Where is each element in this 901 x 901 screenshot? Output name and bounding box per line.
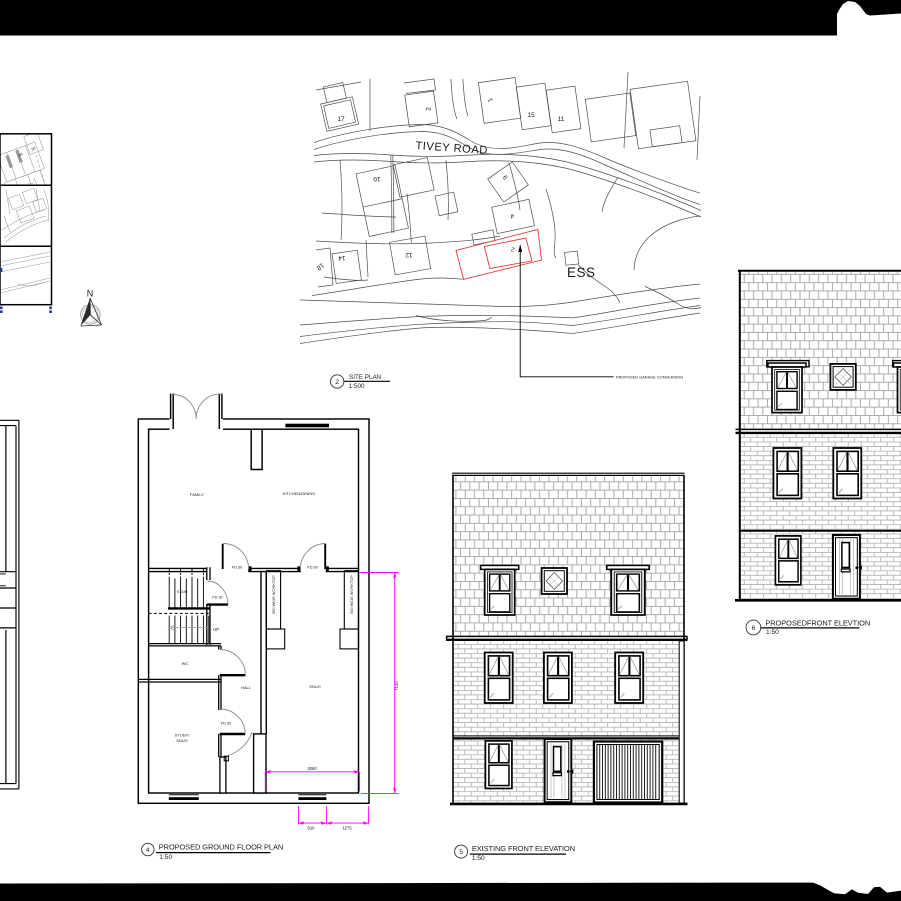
svg-text:FD.30: FD.30: [221, 722, 231, 726]
svg-text:6: 6: [752, 625, 756, 632]
svg-text:1:50: 1:50: [766, 629, 779, 636]
svg-text:PROPOSED GARAGE CONVERSION: PROPOSED GARAGE CONVERSION: [616, 375, 683, 380]
svg-text:3060: 3060: [307, 766, 317, 771]
svg-text:SNUG: SNUG: [176, 738, 188, 743]
svg-text:TIVEY ROAD: TIVEY ROAD: [415, 140, 488, 157]
svg-text:1:50: 1:50: [159, 854, 172, 861]
svg-text:17: 17: [337, 116, 345, 123]
svg-text:SNUG: SNUG: [309, 684, 321, 689]
svg-text:10: 10: [373, 175, 381, 182]
svg-text:14: 14: [338, 254, 346, 261]
svg-text:PROPOSEDFRONT ELEVTION: PROPOSEDFRONT ELEVTION: [765, 618, 870, 627]
svg-text:FAMILY: FAMILY: [190, 492, 204, 497]
svg-text:15: 15: [527, 112, 535, 119]
svg-text:4: 4: [146, 847, 150, 854]
svg-text:11: 11: [558, 116, 565, 123]
svg-text:4: 4: [510, 212, 516, 220]
svg-text:SITE PLAN: SITE PLAN: [349, 374, 382, 381]
svg-text:9: 9: [502, 173, 510, 181]
svg-text:18: 18: [315, 261, 325, 271]
svg-text:WC: WC: [182, 661, 189, 666]
svg-text:STAIR: STAIR: [177, 590, 188, 594]
svg-text:910: 910: [308, 826, 316, 831]
svg-text:KITCHEN/DINING: KITCHEN/DINING: [283, 491, 316, 496]
svg-text:2: 2: [425, 106, 432, 111]
svg-text:500 WIDE WORKTOP: 500 WIDE WORKTOP: [271, 575, 276, 614]
svg-text:FD.30: FD.30: [232, 565, 242, 569]
svg-text:UP: UP: [213, 627, 219, 632]
svg-text:FD.30: FD.30: [307, 565, 317, 569]
svg-text:EXISTING FRONT ELEVATION: EXISTING FRONT ELEVATION: [472, 844, 575, 853]
svg-text:N: N: [87, 289, 94, 299]
svg-text:PROPOSED GROUND FLOOR PLAN: PROPOSED GROUND FLOOR PLAN: [159, 843, 283, 852]
svg-text:1:500: 1:500: [349, 383, 365, 390]
svg-text:2: 2: [510, 245, 515, 252]
svg-text:HALL: HALL: [241, 685, 252, 690]
svg-text:FD.30: FD.30: [212, 596, 222, 600]
svg-text:14: 14: [17, 151, 24, 158]
svg-text:1275: 1275: [342, 826, 352, 831]
svg-text:STUDY/: STUDY/: [175, 733, 191, 738]
svg-text:ESS: ESS: [567, 265, 596, 280]
svg-text:1: 1: [487, 96, 495, 103]
svg-text:2: 2: [335, 379, 339, 386]
svg-text:500 WIDE WORKTOP: 500 WIDE WORKTOP: [349, 575, 354, 614]
svg-text:5: 5: [459, 849, 463, 856]
svg-text:1:50: 1:50: [472, 855, 485, 862]
svg-text:7130: 7130: [394, 681, 399, 691]
svg-text:12: 12: [405, 251, 413, 258]
